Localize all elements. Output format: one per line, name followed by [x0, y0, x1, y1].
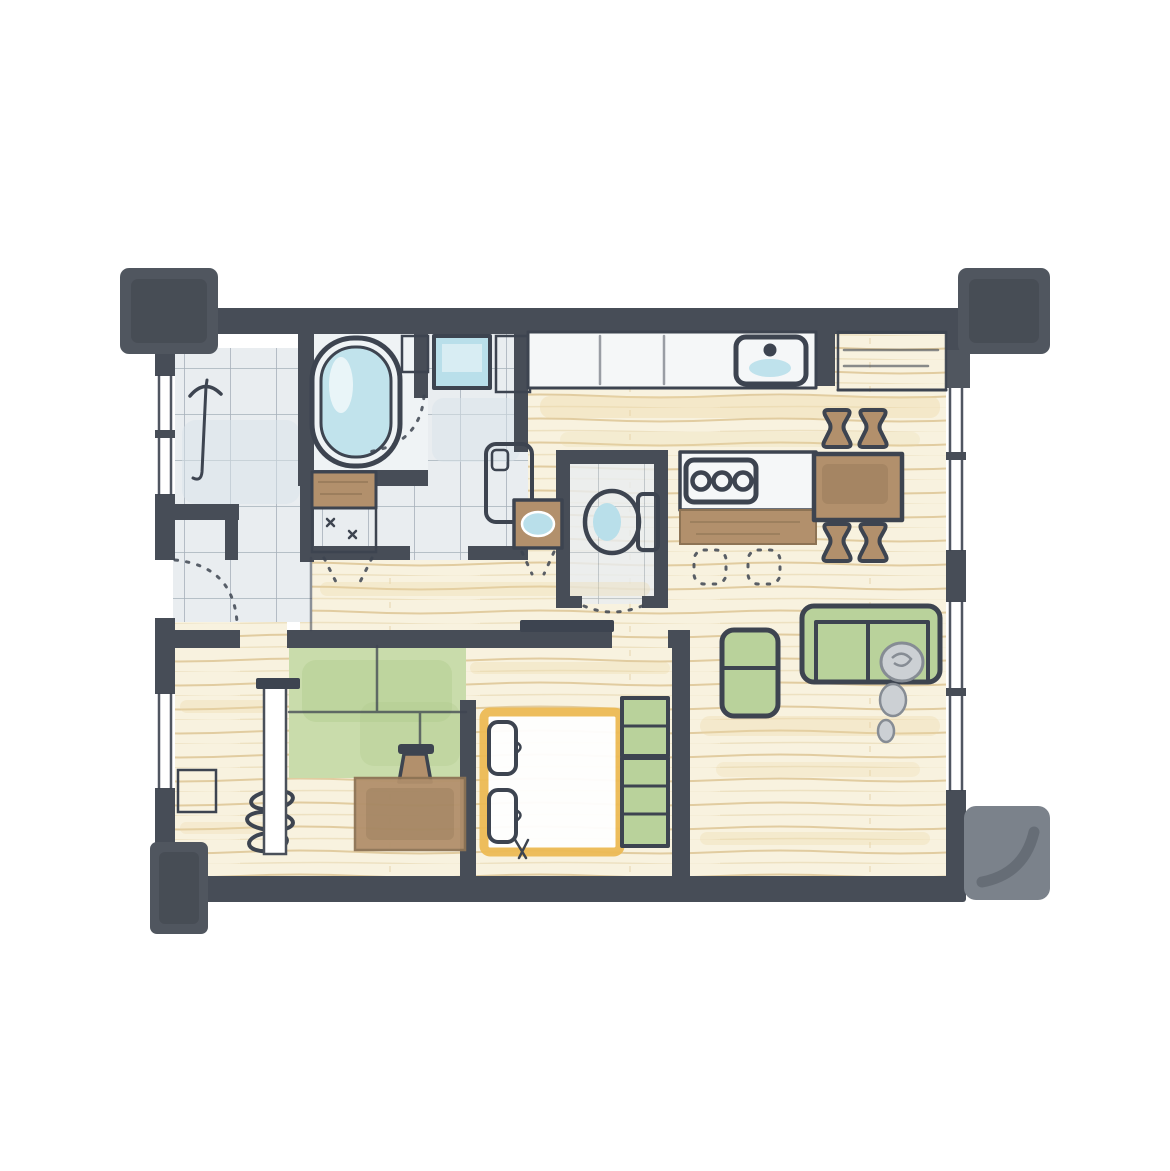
pillar-bottom-right [964, 806, 1050, 900]
window-right-upper [946, 368, 966, 550]
wall-top [195, 308, 968, 334]
pillar-top-right [946, 268, 1050, 388]
flower-vase [398, 744, 434, 782]
kitchen-island [680, 452, 816, 544]
washroom-window [434, 336, 490, 388]
window-left-lower [155, 694, 175, 788]
floor-plan-canvas [0, 0, 1170, 1171]
pillar-top-left [120, 268, 218, 354]
island-counter-front [680, 510, 816, 544]
pillar-bottom-left [150, 842, 208, 934]
wall-closet-right [672, 630, 690, 878]
folded-futon-stack [622, 698, 668, 846]
armchair [722, 630, 778, 716]
window-left-upper [155, 376, 175, 494]
closet-rod-border [484, 712, 620, 852]
walk-in-closet [484, 698, 668, 858]
wall-kitchen-stub [815, 330, 835, 386]
tv-board [520, 620, 614, 632]
entry-door-leaf [225, 506, 238, 560]
wall-bottom [195, 876, 966, 902]
wall-toilet-top [556, 450, 668, 464]
floor-plan-drawing [0, 0, 1170, 1171]
window-right-lower [946, 602, 966, 790]
dining-table [814, 454, 902, 520]
